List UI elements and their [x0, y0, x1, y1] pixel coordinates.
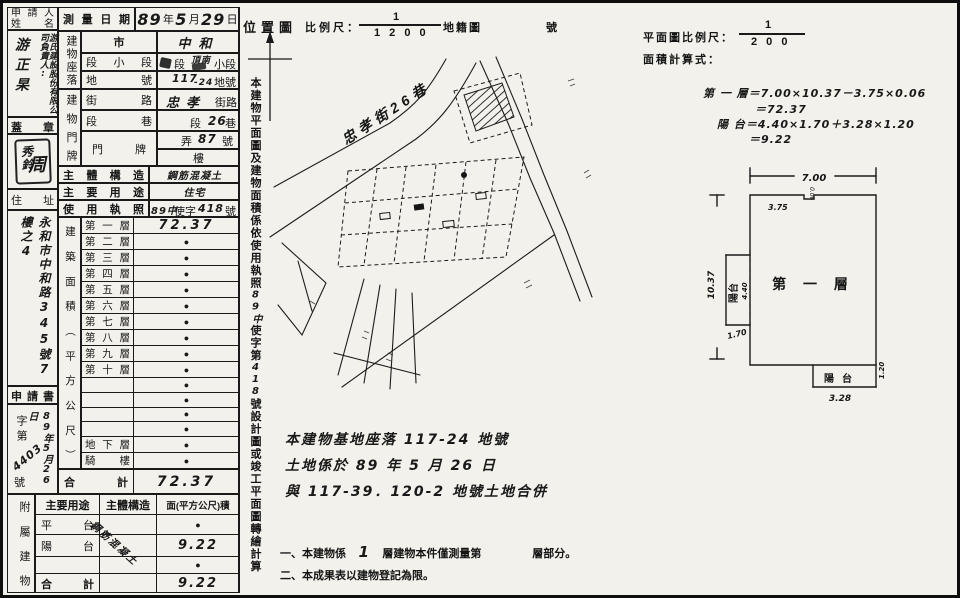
annex-header-use: 主要用途 — [36, 495, 100, 514]
annex-area-balcony: 9.22 — [157, 535, 239, 556]
land-no-sub: -24 — [194, 78, 213, 88]
street-label: 街路 — [81, 89, 157, 110]
license-value: 89中 使字 418 號 — [149, 200, 240, 217]
ink-stamp — [192, 62, 207, 71]
location-map-header: 位置圖 比例尺： 1 1 2 0 0 地籍圖 號 — [243, 11, 623, 51]
annex-group-text: 附屬建物 — [16, 495, 32, 592]
side-note-hw2: 418 — [250, 362, 261, 398]
address-line1: 永和市中和路345號 — [37, 216, 51, 362]
dim-328: 3.28 — [829, 394, 851, 403]
table-row: 第八層● — [82, 330, 239, 346]
city-value: 中和 — [157, 31, 240, 53]
usage-value: 住宅 — [149, 183, 240, 200]
dim-170: 1.70 — [726, 327, 748, 341]
annex-header-area: 面(平方公尺)積 — [157, 495, 239, 514]
plate-label: 門牌 — [81, 131, 157, 166]
city-label: 市 — [81, 31, 157, 53]
structure-value: 鋼筋混凝土 — [149, 166, 240, 183]
table-row: 地下層● — [82, 437, 239, 453]
segment-value: 段 頂南 小段 — [157, 53, 240, 71]
base-note-line1: 本建物基地座落 117-24 地號 — [285, 427, 585, 453]
site-group-label: 建物座落 — [58, 31, 81, 89]
survey-month: 5 — [175, 10, 187, 29]
application-date: 89年5月26日 — [24, 411, 54, 493]
plan-scale-label: 平面圖比例尺： — [643, 29, 734, 45]
seal-stamp: 周 秀鈴 — [14, 138, 52, 184]
company-line1: 游氏建設股份 — [47, 33, 57, 87]
applicant-company: 游氏建設股份有限公司負責人: — [38, 33, 56, 117]
formula-floor1: 第 一 層＝7.00×10.37－3.75×0.06 — [703, 85, 933, 102]
area-formulas: 第 一 層＝7.00×10.37－3.75×0.06 ＝72.37 陽 台＝4.… — [703, 85, 933, 147]
footnotes: 一、本建物係 1 層建物本件僅測量第 層部分。 二、本成果表以建物登記為限。 — [280, 541, 620, 587]
table-row: 第三層● — [82, 250, 239, 266]
annex-total-value: 9.22 — [157, 574, 239, 593]
map-type-label: 地籍圖 — [443, 19, 482, 35]
table-row: 第六層● — [82, 298, 239, 314]
address-value: 永和市中和路345號7樓之4 — [7, 210, 58, 386]
applicant-label-line2: 姓名 — [11, 19, 54, 30]
seal-chars-left: 秀鈴 — [18, 145, 36, 186]
application-number-cell: 字第 4403 號 89年5月26日 — [7, 404, 58, 494]
area-calc-label: 面積計算式： — [643, 51, 721, 67]
plan-scale-denominator: 2 0 0 — [751, 36, 790, 48]
license-label: 使用執照 — [58, 200, 149, 217]
usage-label: 主要用途 — [58, 183, 149, 200]
application-label: 申請書 — [7, 386, 58, 404]
table-row: ● — [82, 393, 239, 408]
table-row: 第七層● — [82, 314, 239, 330]
footnote-2: 二、本成果表以建物登記為限。 — [280, 565, 620, 587]
survey-date-value: 89年 5月 29日 — [135, 7, 240, 31]
alley-number: 87 — [198, 132, 217, 146]
floor-area-table: 第一層72.37 第二層● 第三層● 第四層● 第五層● 第六層● 第七層● 第… — [81, 217, 240, 469]
applicant-name-label: 申請人 姓名 — [7, 7, 58, 30]
dim-375: 3.75 — [768, 203, 788, 212]
land-number-value: 117 -24 地號 — [157, 71, 240, 89]
table-row: 第一層72.37 — [82, 218, 239, 234]
table-row: ● — [82, 378, 239, 393]
street-value: 忠孝 街路 — [157, 89, 240, 110]
map-scale-denominator: 1 2 0 0 — [374, 27, 429, 39]
room-label: 第 一 層 — [772, 276, 854, 293]
land-number-label: 地號 — [81, 71, 157, 89]
seal-area: 周 秀鈴 — [7, 134, 58, 189]
table-row: 騎樓● — [82, 453, 239, 468]
formula-floor1-result: ＝72.37 — [755, 102, 933, 117]
table-row: 第九層● — [82, 346, 239, 362]
ink-stamp — [159, 57, 172, 69]
applicant-name-value: 游氏建設股份有限公司負責人: 游正杲 — [7, 30, 58, 117]
floor-total-row: 合計 72.37 — [58, 469, 240, 494]
left-form: 申請人 姓名 游氏建設股份有限公司負責人: 游正杲 蓋章 周 秀鈴 住址 永和市… — [7, 7, 240, 593]
base-note-line3: 與 117-39．120-2 地號土地合併 — [285, 479, 585, 505]
table-row: 第二層● — [82, 234, 239, 250]
floor-suffix: 樓 — [157, 149, 240, 166]
company-title: 負責人: — [38, 42, 48, 79]
applicant-label-line1: 申請人 — [11, 8, 54, 19]
hatched-building — [464, 83, 514, 131]
plan-scale-numerator: 1 — [765, 19, 771, 31]
map-scale-label: 比例尺： — [305, 19, 361, 35]
dim-left-1037: 10.37 — [707, 270, 717, 299]
plate-group-label: 建物門牌 — [58, 89, 81, 166]
survey-day: 29 — [201, 10, 225, 29]
table-row: 第四層● — [82, 266, 239, 282]
side-note-hw1: 89中 — [250, 290, 261, 325]
area-group-label: 建築面積（平方公尺） — [58, 217, 81, 469]
lane-value: 段 26 巷 — [157, 110, 240, 131]
floor-plan-header: 平面圖比例尺： 1 2 0 0 面積計算式： — [643, 17, 863, 67]
cadastral-map-sketch: 忠孝街26巷 — [268, 53, 618, 398]
formula-balcony-result: ＝9.22 — [749, 133, 933, 147]
base-parcel-note: 本建物基地座落 117-24 地號 土地係於 89 年 5 月 26 日 與 1… — [285, 427, 585, 505]
table-row: ● — [82, 422, 239, 437]
floor-plan-drawing: 第 一 層 7.00 0.06 3.75 10.37 陽台 4.40 1.70 … — [688, 153, 960, 403]
map-scale-bar — [359, 24, 441, 26]
survey-date-label: 測量日期 — [58, 7, 135, 31]
table-row: 第五層● — [82, 282, 239, 298]
balcony-bottom-label: 陽台 — [824, 372, 860, 385]
seal-label: 蓋章 — [7, 117, 58, 134]
lane-label: 段巷 — [81, 110, 157, 131]
table-row: ● — [82, 408, 239, 423]
map-scale-numerator: 1 — [393, 11, 399, 23]
annex-header-structure: 主體構造 — [100, 495, 157, 514]
balcony-left-label: 陽台 — [727, 283, 740, 303]
survey-year: 89 — [137, 10, 161, 29]
base-note-line2: 土地係於 89 年 5 月 26 日 — [285, 453, 585, 479]
survey-result-document: 申請人 姓名 游氏建設股份有限公司負責人: 游正杲 蓋章 周 秀鈴 住址 永和市… — [0, 0, 960, 598]
address-label: 住址 — [7, 189, 58, 210]
map-sheet-suffix: 號 — [546, 19, 557, 35]
applicant-name: 游正杲 — [11, 37, 31, 117]
dim-440: 4.40 — [741, 282, 749, 299]
alley-value: 弄 87 號 — [157, 131, 240, 149]
annex-table: 主要用途 主體構造 面(平方公尺)積 平台 ● 陽台 9.22 ● 合計 — [35, 494, 240, 593]
annex-area-platform: ● — [157, 515, 239, 534]
annex-group-label: 附屬建物 — [7, 494, 35, 593]
street-name: 忠孝 — [166, 92, 206, 111]
dim-006: 0.06 — [808, 187, 815, 201]
structure-label: 主體構造 — [58, 166, 149, 183]
license-number: 418 — [198, 202, 224, 215]
side-note-vertical: 本建物平面圖及建物面積係依使用執照89中使字第418號設計圖或竣工平面圖轉繪計算 — [242, 77, 268, 589]
segment-label: 段小段 — [81, 53, 157, 71]
dim-top-7: 7.00 — [802, 173, 827, 184]
dim-120: 1.20 — [878, 362, 886, 379]
floor-total-value: 72.37 — [134, 470, 239, 493]
footnote-floor-count: 1 — [350, 543, 377, 561]
lane-number: 26 — [208, 114, 227, 128]
plan-scale-bar — [739, 33, 805, 35]
table-row: 第十層● — [82, 362, 239, 378]
formula-balcony: 陽 台＝4.40×1.70＋3.28×1.20 — [717, 117, 933, 133]
address-text: 永和市中和路345號7樓之4 — [17, 216, 53, 384]
